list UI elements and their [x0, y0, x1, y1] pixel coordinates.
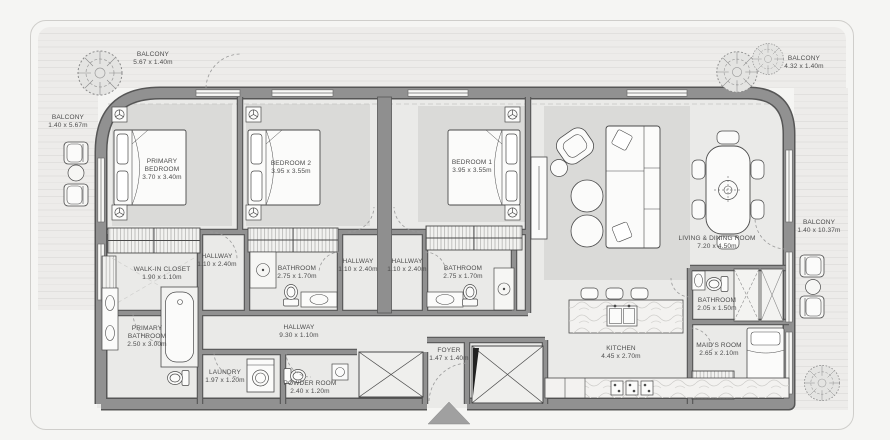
- room-name: FOYER: [429, 347, 468, 355]
- balcony-label-right: BALCONY 1.40 x 10.37m: [797, 219, 840, 235]
- room-label-bedroom-2: BEDROOM 2 3.95 x 3.55m: [271, 160, 311, 176]
- room-label-hallway-c: HALLWAY 1.10 x 2.40m: [387, 258, 426, 274]
- room-name: BALCONY: [133, 51, 172, 59]
- toilet-icon: [463, 285, 478, 307]
- room-dims: 2.40 x 1.20m: [284, 388, 337, 396]
- room-label-primary-bedroom: PRIMARY BEDROOM 3.70 x 3.40m: [136, 158, 188, 182]
- dining-chair-icon: [717, 131, 739, 144]
- room-dims: 3.70 x 3.40m: [136, 174, 188, 182]
- room-name: BEDROOM 2: [271, 160, 311, 168]
- room-name: LIVING & DINING ROOM: [678, 235, 755, 243]
- balcony-table-icon: [68, 165, 84, 181]
- toilet-icon: [168, 371, 190, 386]
- toilet-icon: [707, 277, 729, 292]
- tree-icon: [717, 52, 757, 92]
- ceiling-lamp-icon: [246, 107, 261, 122]
- room-dims: 7.20 x 4.50m: [678, 243, 755, 251]
- coffee-table-icon: [571, 180, 603, 212]
- toilet-icon: [284, 285, 299, 307]
- room-name: HALLWAY: [387, 258, 426, 266]
- room-dims: 9.30 x 1.10m: [279, 332, 318, 340]
- room-label-laundry: LAUNDRY 1.97 x 1.20m: [205, 369, 244, 385]
- tree-icon: [753, 44, 784, 75]
- room-label-living-dining: LIVING & DINING ROOM 7.20 x 4.50m: [678, 235, 755, 251]
- room-name: HALLWAY: [338, 258, 377, 266]
- stool-icon: [631, 288, 648, 299]
- room-dims: 1.97 x 1.20m: [205, 377, 244, 385]
- room-dims: 1.10 x 2.40m: [197, 261, 236, 269]
- room-name: PRIMARY BATHROOM: [121, 325, 173, 341]
- entry-arrow-icon: [428, 402, 470, 424]
- room-dims: 1.40 x 5.67m: [48, 122, 87, 130]
- room-dims: 1.10 x 2.40m: [387, 266, 426, 274]
- balcony-chair-icon: [64, 184, 88, 206]
- dining-chair-icon: [751, 160, 764, 179]
- room-name: POWDER ROOM: [284, 380, 337, 388]
- room-name: BATHROOM: [443, 265, 482, 273]
- room-name: BATHROOM: [277, 265, 316, 273]
- stool-icon: [606, 288, 623, 299]
- room-name: KITCHEN: [601, 345, 640, 353]
- room-dims: 1.40 x 10.37m: [797, 227, 840, 235]
- washer-icon: [247, 359, 274, 392]
- room-label-walk-in-closet: WALK-IN CLOSET 1.90 x 1.10m: [134, 266, 191, 282]
- ceiling-lamp-icon: [505, 205, 520, 220]
- room-dims: 4.45 x 2.70m: [601, 353, 640, 361]
- dining-chair-icon: [692, 160, 705, 179]
- balcony-label-top-right: BALCONY 4.32 x 1.40m: [784, 55, 823, 71]
- room-label-bedroom-1: BEDROOM 1 3.95 x 3.55m: [452, 159, 492, 175]
- balcony-table-icon: [806, 280, 821, 295]
- room-label-powder-room: POWDER ROOM 2.40 x 1.20m: [284, 380, 337, 396]
- sink-icon: [332, 364, 348, 380]
- room-name: HALLWAY: [279, 324, 318, 332]
- side-table-icon: [551, 160, 568, 177]
- room-dims: 2.50 x 3.00m: [121, 341, 173, 349]
- room-dims: 1.47 x 1.40m: [429, 355, 468, 363]
- room-label-foyer: FOYER 1.47 x 1.40m: [429, 347, 468, 363]
- room-label-bathroom-2: BATHROOM 2.75 x 1.70m: [277, 265, 316, 281]
- balcony-chair-icon: [64, 142, 88, 164]
- dining-table-icon: [692, 131, 764, 249]
- room-dims: 2.05 x 1.50m: [697, 305, 736, 313]
- tree-icon: [804, 365, 839, 400]
- maid-bathroom-fixtures: [692, 271, 728, 292]
- ceiling-lamp-icon: [505, 107, 520, 122]
- room-name: MAID'S ROOM: [696, 342, 742, 350]
- ceiling-lamp-icon: [246, 205, 261, 220]
- room-dims: 2.75 x 1.70m: [443, 273, 482, 281]
- kitchen-island-icon: [569, 288, 683, 333]
- room-name: LAUNDRY: [205, 369, 244, 377]
- room-name: BATHROOM: [697, 297, 736, 305]
- room-name: BEDROOM 1: [452, 159, 492, 167]
- room-name: PRIMARY BEDROOM: [136, 158, 188, 174]
- room-label-bathroom-1: BATHROOM 2.75 x 1.70m: [443, 265, 482, 281]
- balcony-label-top-left: BALCONY 5.67 x 1.40m: [133, 51, 172, 67]
- tv-console-icon: [531, 157, 547, 239]
- room-dims: 1.90 x 1.10m: [134, 274, 191, 282]
- room-label-primary-bathroom: PRIMARY BATHROOM 2.50 x 3.00m: [121, 325, 173, 349]
- coffee-table-icon: [571, 215, 603, 247]
- balcony-chair-icon: [800, 296, 824, 318]
- room-dims: 2.65 x 2.10m: [696, 350, 742, 358]
- room-dims: 3.95 x 3.55m: [271, 168, 311, 176]
- ceiling-lamp-icon: [112, 107, 127, 122]
- ceiling-lamp-icon: [112, 205, 127, 220]
- room-label-maid-bathroom: BATHROOM 2.05 x 1.50m: [697, 297, 736, 313]
- room-label-maids-room: MAID'S ROOM 2.65 x 2.10m: [696, 342, 742, 358]
- room-dims: 1.10 x 2.40m: [338, 266, 377, 274]
- floor-plan: BALCONY 5.67 x 1.40m BALCONY 1.40 x 5.67…: [0, 0, 890, 440]
- tree-icon: [78, 51, 122, 95]
- dining-chair-icon: [692, 200, 705, 219]
- kitchen-counter-icon: [545, 378, 789, 398]
- room-dims: 5.67 x 1.40m: [133, 59, 172, 67]
- room-dims: 4.32 x 1.40m: [784, 63, 823, 71]
- sofa-icon: [606, 126, 660, 248]
- cooktop-icon: [611, 381, 653, 395]
- room-name: BALCONY: [797, 219, 840, 227]
- room-name: BALCONY: [784, 55, 823, 63]
- maid-shower-icon: [734, 269, 783, 321]
- room-name: BALCONY: [48, 114, 87, 122]
- room-dims: 2.75 x 1.70m: [277, 273, 316, 281]
- balcony-label-left: BALCONY 1.40 x 5.67m: [48, 114, 87, 130]
- room-label-kitchen: KITCHEN 4.45 x 2.70m: [601, 345, 640, 361]
- room-name: HALLWAY: [197, 253, 236, 261]
- room-name: WALK-IN CLOSET: [134, 266, 191, 274]
- balcony-chair-icon: [800, 255, 824, 277]
- room-label-hallway-b: HALLWAY 1.10 x 2.40m: [338, 258, 377, 274]
- stool-icon: [581, 288, 598, 299]
- room-label-hallway-main: HALLWAY 9.30 x 1.10m: [279, 324, 318, 340]
- kitchen-sink-icon: [607, 306, 637, 326]
- room-label-hallway-a: HALLWAY 1.10 x 2.40m: [197, 253, 236, 269]
- dining-chair-icon: [751, 200, 764, 219]
- room-dims: 3.95 x 3.55m: [452, 167, 492, 175]
